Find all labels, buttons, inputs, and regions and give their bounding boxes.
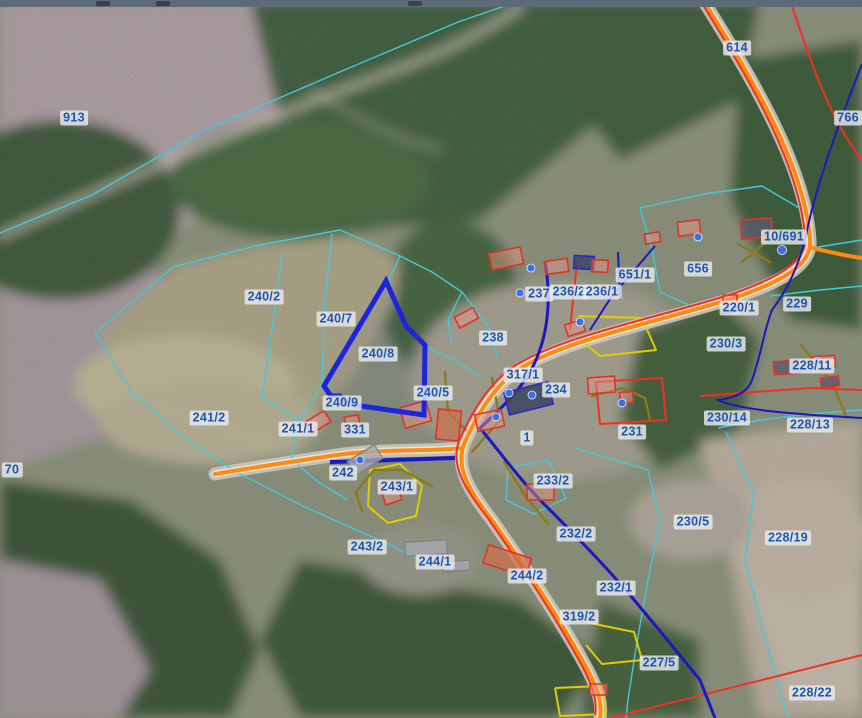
parcel-label: 230/5 <box>674 515 713 530</box>
parcel-label: 651/1 <box>616 268 655 283</box>
parcel-label: 232/2 <box>557 527 596 542</box>
parcel-label: 656 <box>684 262 712 277</box>
parcel-label: 228/13 <box>787 418 833 433</box>
chrome-notch <box>156 1 170 6</box>
parcel-label: 766 <box>834 111 862 126</box>
parcel-label: 317/1 <box>504 368 543 383</box>
chrome-notch <box>96 1 110 6</box>
parcel-label: 70 <box>2 463 23 478</box>
parcel-label: 240/9 <box>323 396 362 411</box>
parcel-label: 319/2 <box>560 610 599 625</box>
parcel-label: 331 <box>341 423 369 438</box>
parcel-label: 238 <box>479 331 507 346</box>
parcel-label: 240/7 <box>317 312 356 327</box>
parcel-label: 243/2 <box>348 540 387 555</box>
parcel-label: 236/1 <box>583 285 622 300</box>
parcel-label: 228/19 <box>765 531 811 546</box>
map-graphics <box>0 0 862 718</box>
parcel-label: 234 <box>542 383 570 398</box>
parcel-label: 229 <box>783 297 811 312</box>
photo-grain-texture <box>0 0 862 718</box>
parcel-label: 232/1 <box>597 581 636 596</box>
parcel-label: 228/22 <box>789 686 835 701</box>
parcel-label: 240/5 <box>414 386 453 401</box>
parcel-label: 10/691 <box>761 230 807 245</box>
parcel-label: 220/1 <box>720 301 759 316</box>
parcel-label: 240/2 <box>245 290 284 305</box>
parcel-label: 240/8 <box>359 347 398 362</box>
map-canvas[interactable]: 913240/2240/7240/8240/5240/9241/2241/133… <box>0 0 862 718</box>
chrome-notch <box>408 1 422 6</box>
parcel-label: 241/2 <box>190 411 229 426</box>
parcel-label: 614 <box>723 41 751 56</box>
parcel-label: 230/3 <box>707 337 746 352</box>
parcel-label: 230/14 <box>704 411 750 426</box>
parcel-label: 231 <box>618 425 646 440</box>
parcel-label: 244/2 <box>508 569 547 584</box>
parcel-label: 1 <box>520 431 533 446</box>
parcel-label: 244/1 <box>416 555 455 570</box>
parcel-label: 243/1 <box>378 480 417 495</box>
window-chrome-strip <box>0 0 862 7</box>
parcel-label: 233/2 <box>534 474 573 489</box>
map-viewport[interactable]: 913240/2240/7240/8240/5240/9241/2241/133… <box>0 0 862 718</box>
parcel-label: 228/11 <box>789 359 834 374</box>
parcel-label: 227/5 <box>640 656 679 671</box>
parcel-label: 242 <box>329 466 357 481</box>
parcel-label: 241/1 <box>279 422 318 437</box>
parcel-label: 913 <box>60 111 88 126</box>
